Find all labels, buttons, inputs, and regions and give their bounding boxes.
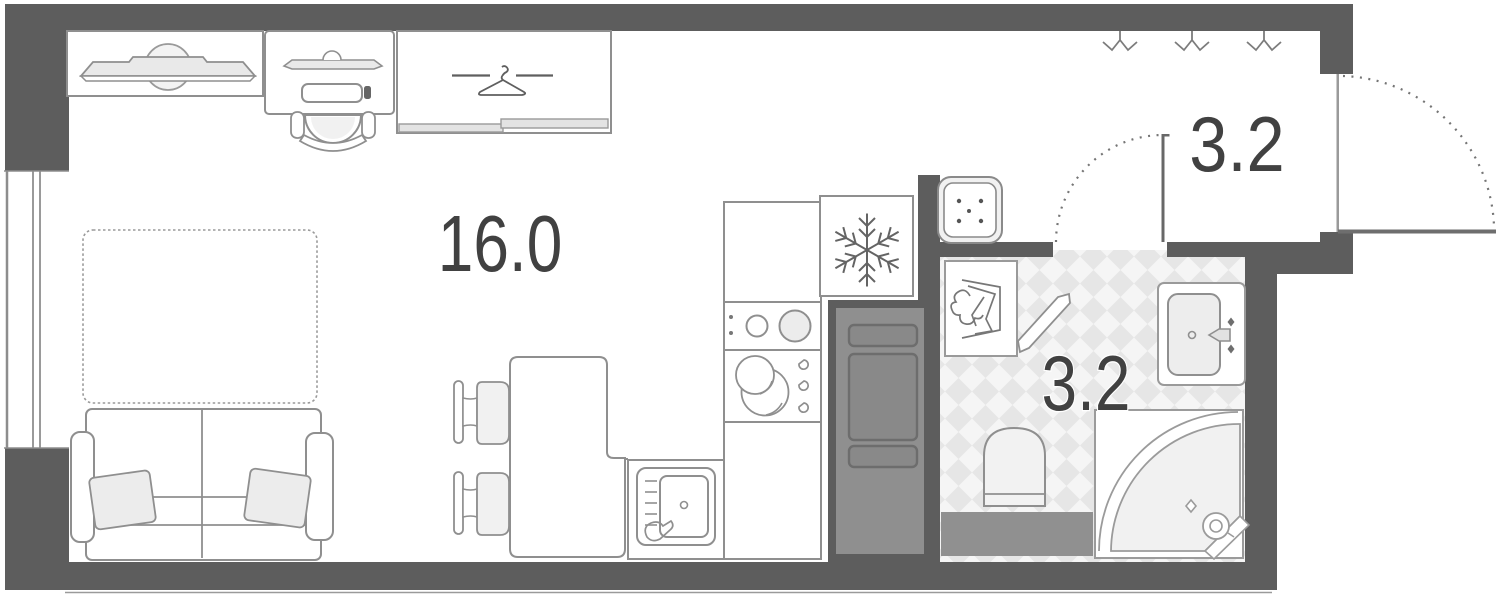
svg-text:3.2: 3.2 [1189,100,1284,188]
svg-text:3.2: 3.2 [1042,340,1131,427]
svg-text:16.0: 16.0 [438,199,563,288]
